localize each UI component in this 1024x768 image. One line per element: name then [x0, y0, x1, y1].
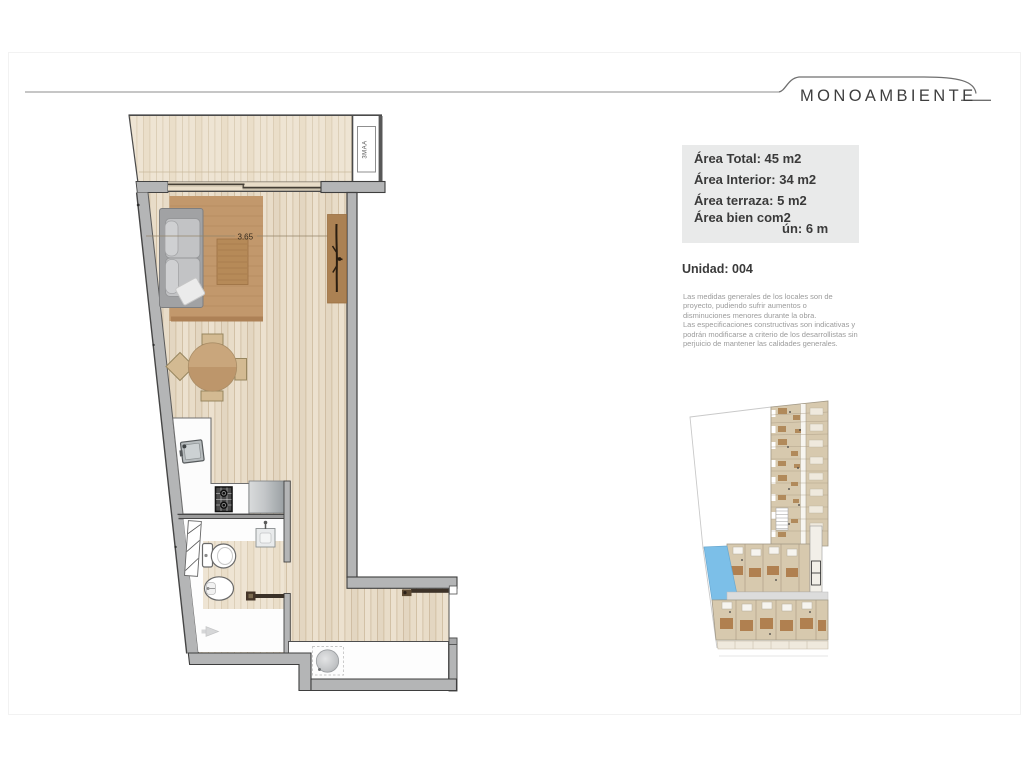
svg-text:3.65: 3.65 — [238, 232, 254, 241]
svg-text:3MAA: 3MAA — [363, 140, 369, 158]
